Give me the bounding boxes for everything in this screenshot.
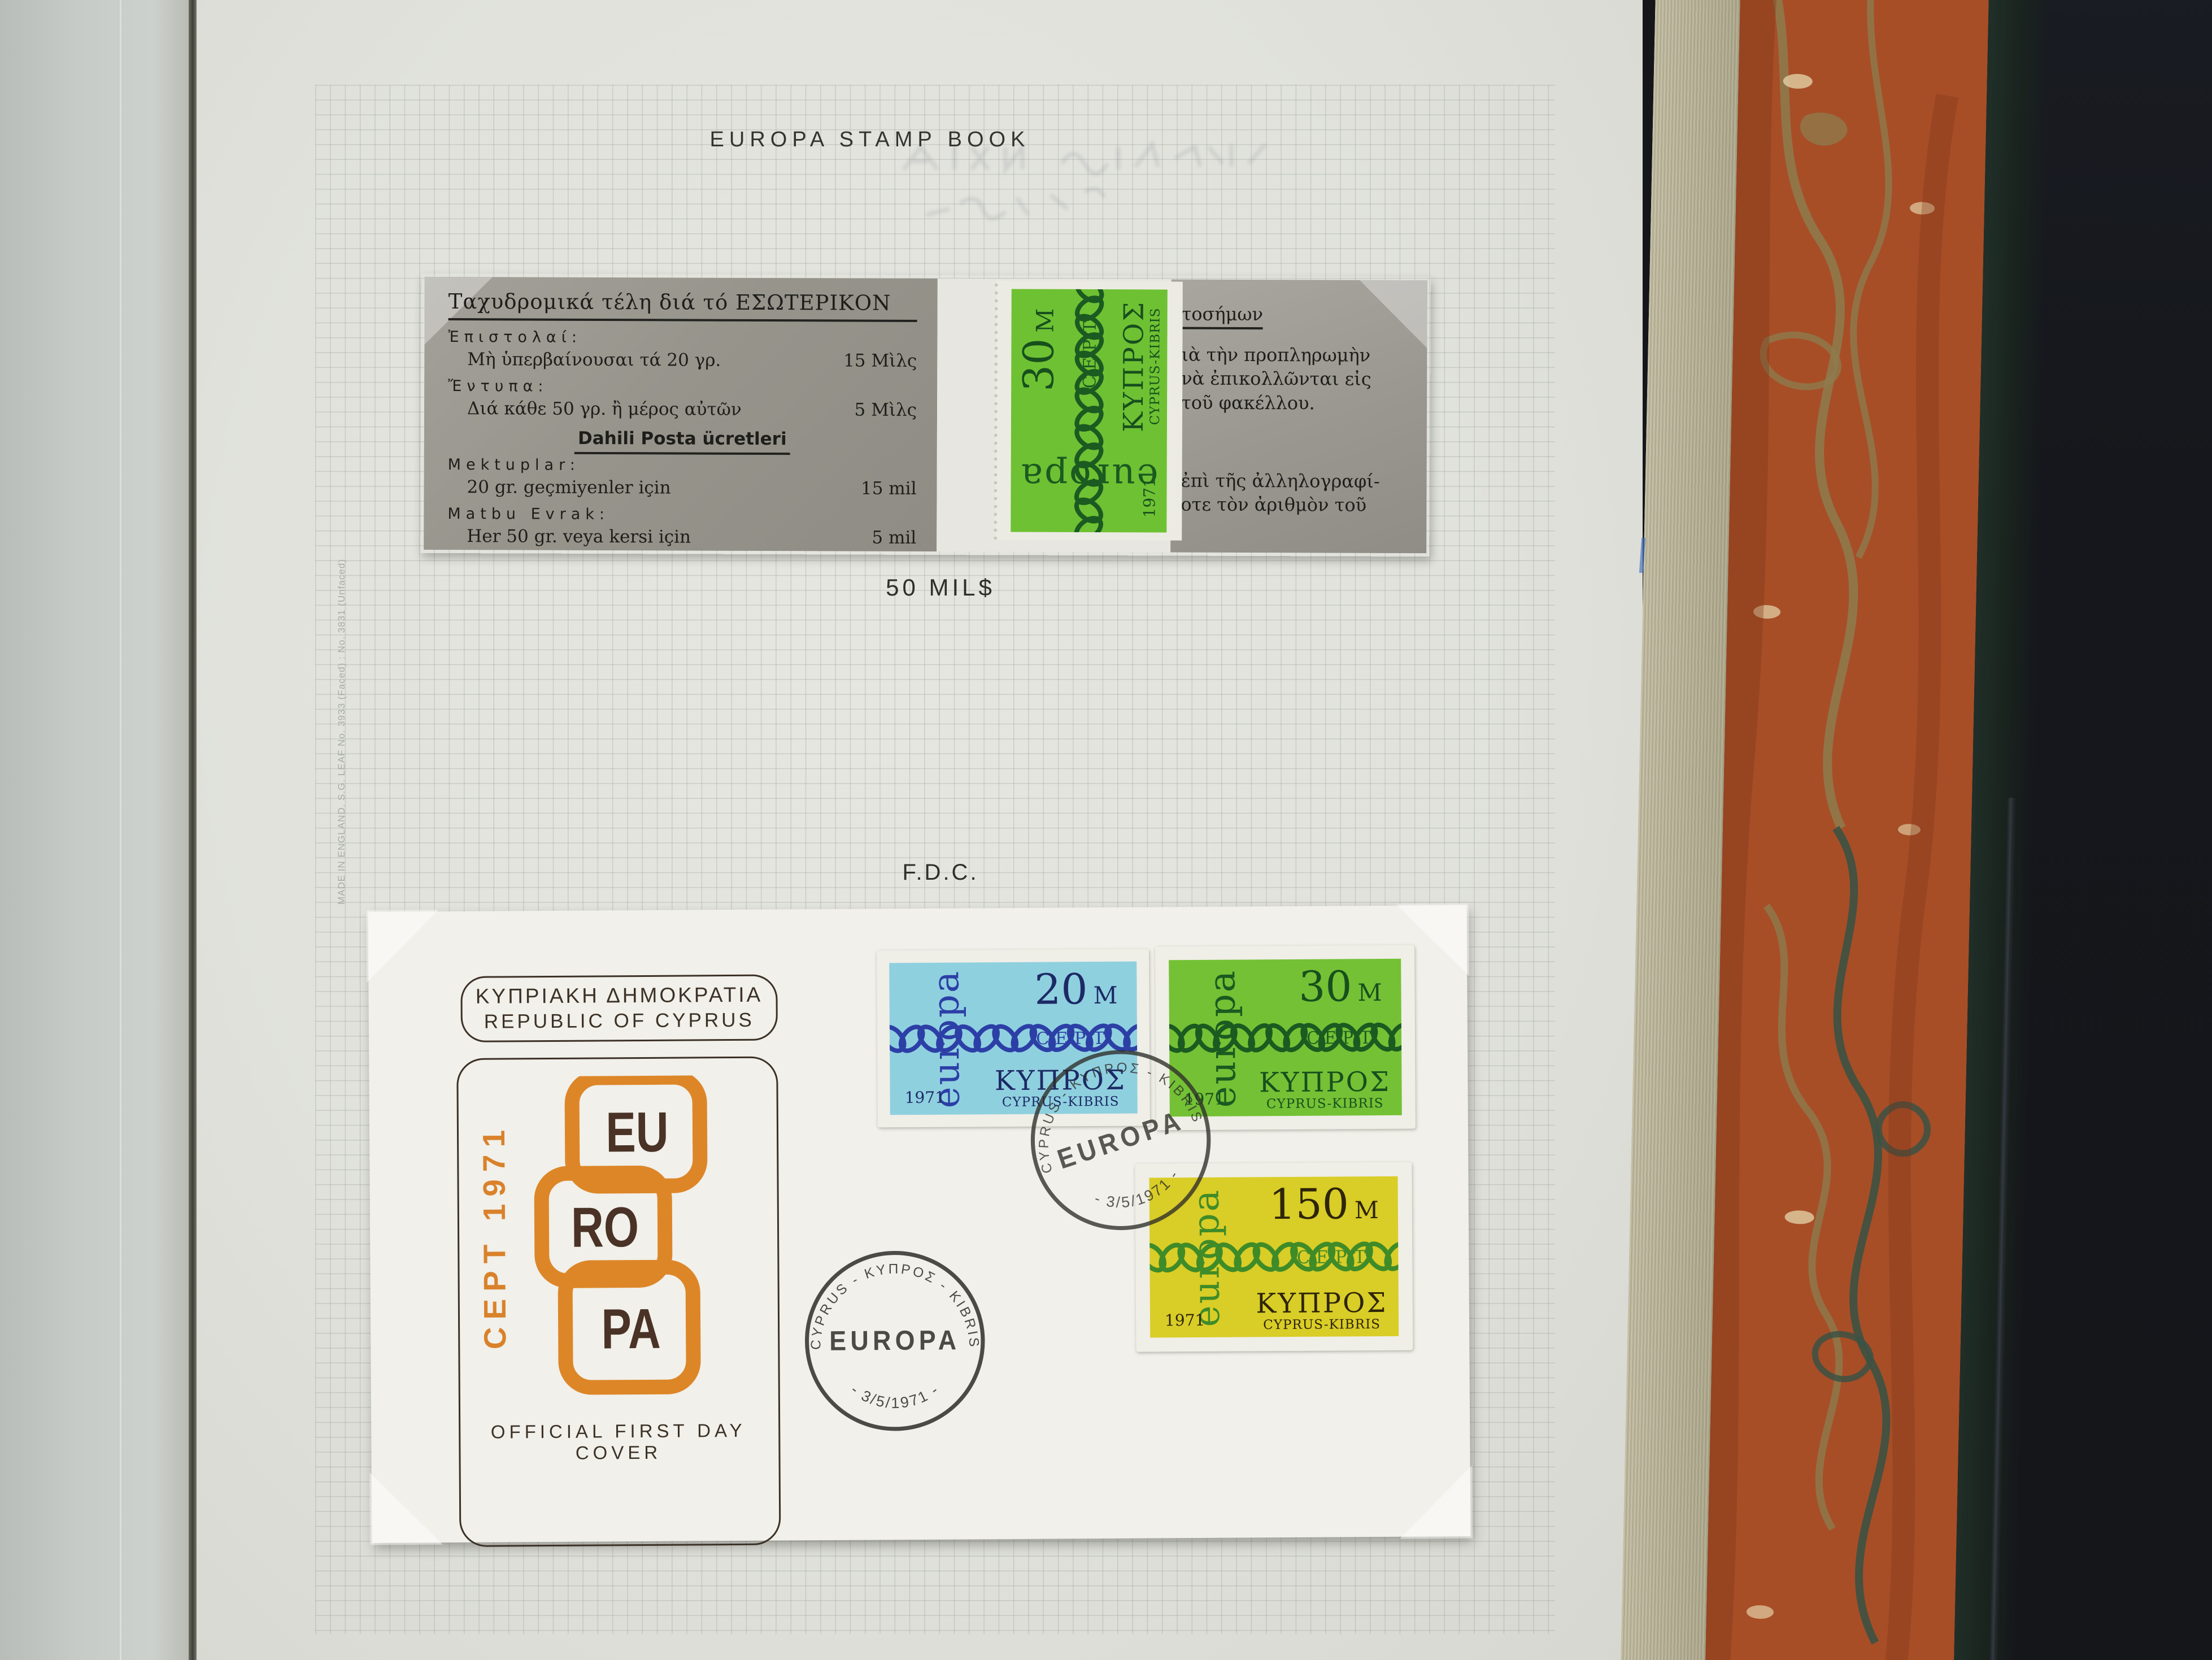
stamp-country: ΚΥΠΡΟΣCYPRUS-KIBRIS	[1257, 1067, 1392, 1111]
stamp-country: ΚΥΠΡΟΣCYPRUS-KIBRIS	[1254, 1289, 1390, 1333]
cachet-cept-1971: CEPT 1971	[476, 1123, 513, 1350]
album-right-edge	[1619, 0, 2212, 1660]
svg-text:C: C	[1080, 375, 1100, 388]
stamp-country: ΚΥΠΡΟΣ CYPRUS-KIBRIS	[1119, 298, 1162, 434]
svg-text:C: C	[1036, 1029, 1050, 1049]
booklet-rate-row: Her 50 gr. veya kersi için 5 mil	[447, 526, 916, 548]
europa-chain-logo: EU RO PA	[526, 1075, 726, 1472]
marble-pattern	[1704, 0, 1989, 1660]
stamp-year: 1971	[1140, 477, 1159, 518]
fdc-header-english: REPUBLIC OF CYPRUS	[463, 1009, 776, 1033]
booklet-note-line: τοῦ φακέλλου.	[1181, 390, 1416, 415]
ghost-writing	[881, 136, 1344, 260]
fdc-header-box: ΚΥΠΡΙΑΚΗ ΔΗΜΟΚΡΑΤΙΑ REPUBLIC OF CYPRUS	[460, 975, 778, 1042]
svg-text:E: E	[1316, 1247, 1329, 1268]
svg-text:E: E	[1080, 358, 1100, 370]
first-day-cover: ΚΥΠΡΙΑΚΗ ΔΗΜΟΚΡΑΤΙΑ REPUBLIC OF CYPRUS C…	[368, 905, 1471, 1543]
svg-text:P: P	[1335, 1247, 1347, 1268]
booklet-rate-row: 20 gr. geçmiyenler için 15 mil	[447, 477, 916, 499]
booklet-turkish-heading-2: Matbu Evrak:	[447, 505, 916, 524]
facing-page	[0, 0, 197, 1660]
svg-text:EU: EU	[606, 1101, 669, 1164]
svg-text:E: E	[1055, 1029, 1068, 1049]
booklet-rate-row: Διά κάθε 50 γρ. ἢ μέρος αὐτῶν 5 Μὶλς	[448, 398, 917, 420]
svg-text:T: T	[1354, 1247, 1366, 1268]
marbled-board	[1704, 0, 1989, 1660]
booklet-turkish-title: Dahili Posta ücretleri	[448, 428, 917, 450]
booklet-greek-turkish-panel: Ταχυδρομικά τέλη διά τό ΕΣΩΤΕΡΙΚΟΝ Ἐπιστ…	[424, 277, 938, 551]
svg-text:E: E	[1325, 1028, 1336, 1048]
perforation-dots	[992, 281, 1000, 540]
margin-note: MADE IN ENGLAND. S.G. LEAF No. 3933 (Fac…	[336, 534, 347, 929]
booklet-note-line: ιὰ τὴν προπληρωμὴν	[1181, 343, 1416, 368]
facing-page-fold	[120, 0, 121, 1660]
mount-corner	[1399, 1465, 1473, 1539]
booklet-note-line: ἐπὶ τῆς ἀλληλογραφί-	[1181, 469, 1416, 494]
svg-text:P: P	[1343, 1028, 1354, 1048]
postmark-europa: CYPRUS - ΚΥΠΡΟΣ - KIBRISEUROPA- 3/5/1971…	[796, 1242, 993, 1439]
svg-text:EUROPA: EUROPA	[1053, 1105, 1187, 1175]
fdc-cachet: CEPT 1971 EU RO PA	[456, 1057, 781, 1547]
svg-text:P: P	[1074, 1029, 1086, 1049]
europa-word: europa	[1020, 455, 1159, 498]
booklet-greek-heading-2: Ἔντυπα:	[448, 377, 917, 397]
fdc-caption: F.D.C.	[842, 860, 1039, 885]
booklet-greek-title: Ταχυδρομικά τέλη διά τό ΕΣΩΤΕΡΙΚΟΝ	[449, 289, 917, 322]
booklet-stamp-30m: CEPT europa 30 M ΚΥΠΡΟΣ CYPRUS-KIBRIS 19…	[995, 281, 1183, 540]
svg-text:EUROPA: EUROPA	[829, 1325, 960, 1357]
stamp-value: 20M	[1034, 968, 1118, 1011]
svg-text:T: T	[1080, 321, 1100, 332]
booklet-rate-row: Μὴ ὑπερβαίνουσαι τά 20 γρ. 15 Μὶλς	[448, 349, 917, 371]
booklet-note-line: νὰ ἐπικολλῶνται εἰς	[1181, 367, 1416, 392]
stamp-value: 30M	[1299, 966, 1382, 1008]
svg-text:PA: PA	[601, 1297, 661, 1361]
stamp-year: 1971	[1165, 1311, 1205, 1329]
stamp-value: 150M	[1269, 1183, 1379, 1226]
europa-word: europa	[1201, 968, 1244, 1107]
svg-text:RO: RO	[571, 1196, 639, 1259]
fdc-header-greek: ΚΥΠΡΙΑΚΗ ΔΗΜΟΚΡΑΤΙΑ	[462, 983, 776, 1009]
fdc-footer-text: OFFICIAL FIRST DAY COVER	[456, 1420, 781, 1465]
mount-corner	[369, 1471, 443, 1545]
booklet-turkish-heading-1: Mektuplar:	[448, 456, 917, 475]
stamp-design-30m: CEPT europa 30 M ΚΥΠΡΟΣ CYPRUS-KIBRIS 19…	[1011, 289, 1167, 533]
mount-corner	[366, 909, 440, 983]
stamp-year: 1971	[905, 1088, 945, 1107]
booklet-price-caption: 50 MIL$	[813, 574, 1068, 601]
svg-text:C: C	[1307, 1028, 1319, 1049]
svg-text:C: C	[1297, 1247, 1310, 1268]
booklet-note-line: τοσήμων	[1182, 302, 1416, 327]
svg-text:- 3/5/1971 -: - 3/5/1971 -	[848, 1380, 943, 1411]
postmark-graphic: CYPRUS - ΚΥΠΡΟΣ - KIBRISEUROPA- 3/5/1971…	[796, 1242, 993, 1439]
svg-text:P: P	[1080, 340, 1100, 351]
booklet-note-line: οτε τὸν ἀριθμὸν τοῦ	[1181, 493, 1415, 518]
album-photo: EUROPA STAMP BOOK MADE IN ENGLAND. S.G. …	[0, 0, 2212, 1660]
booklet-greek-heading-1: Ἐπιστολαί:	[448, 328, 917, 347]
booklet-greek-notes-panel: τοσήμων ιὰ τὴν προπληρωμὴν νὰ ἐπικολλῶντ…	[1170, 280, 1427, 554]
stamp-booklet-pane: Ταχυδρομικά τέλη διά τό ΕΣΩΤΕΡΙΚΟΝ Ἐπιστ…	[420, 273, 1431, 557]
svg-text:T: T	[1360, 1028, 1371, 1048]
europa-word: europa	[925, 969, 968, 1108]
stamp-value: 30 M	[1018, 308, 1060, 392]
